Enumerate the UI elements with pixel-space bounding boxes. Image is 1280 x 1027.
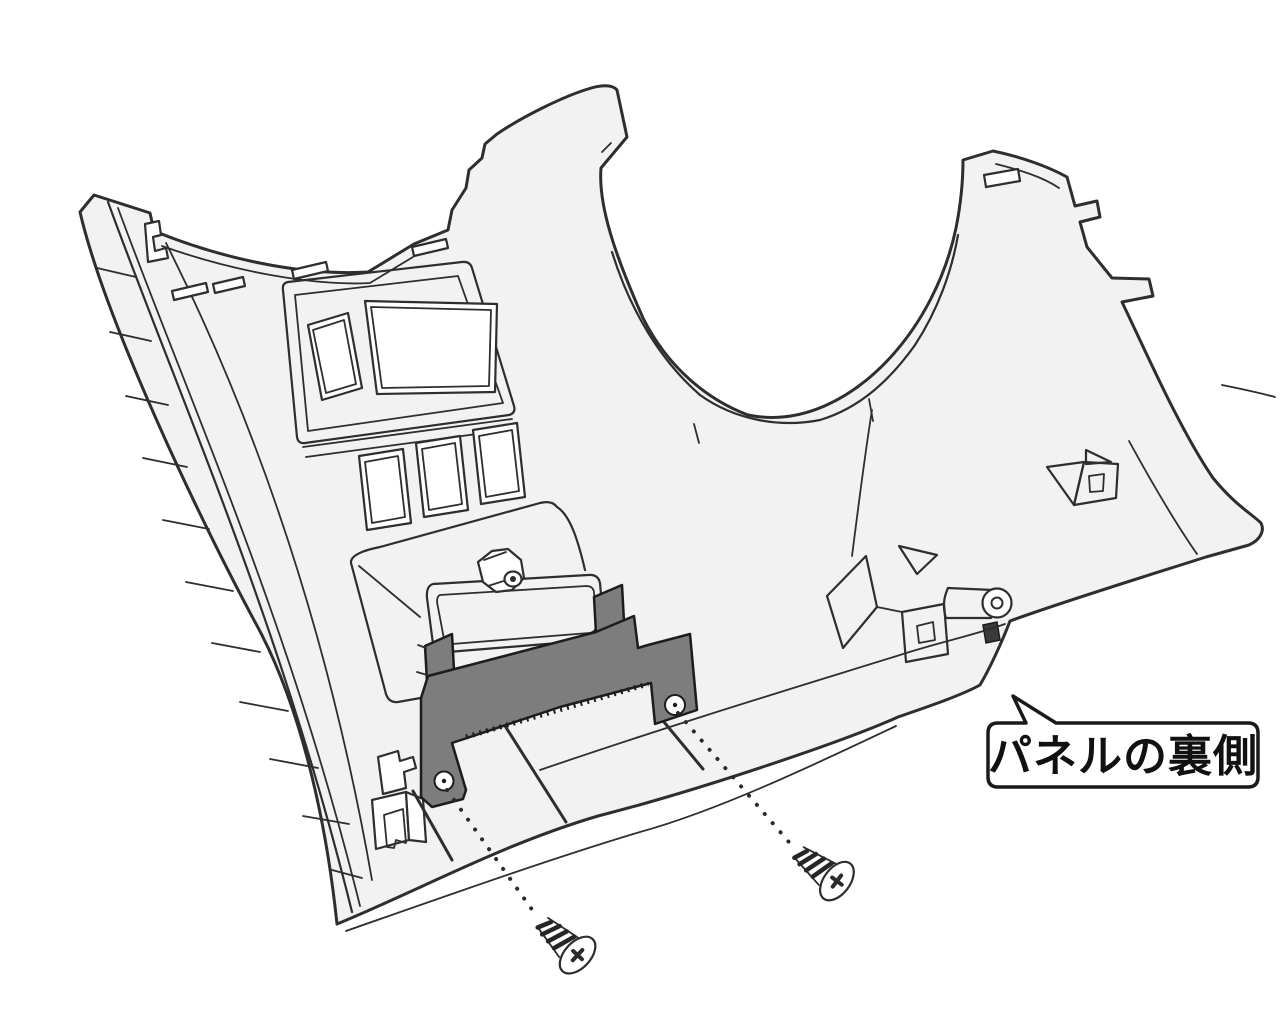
installation-diagram: パネルの裏側 [0,0,1280,1027]
diagram-stage: パネルの裏側 [0,0,1280,1027]
large-window [365,301,497,394]
callout-label: パネルの裏側 [988,732,1258,781]
